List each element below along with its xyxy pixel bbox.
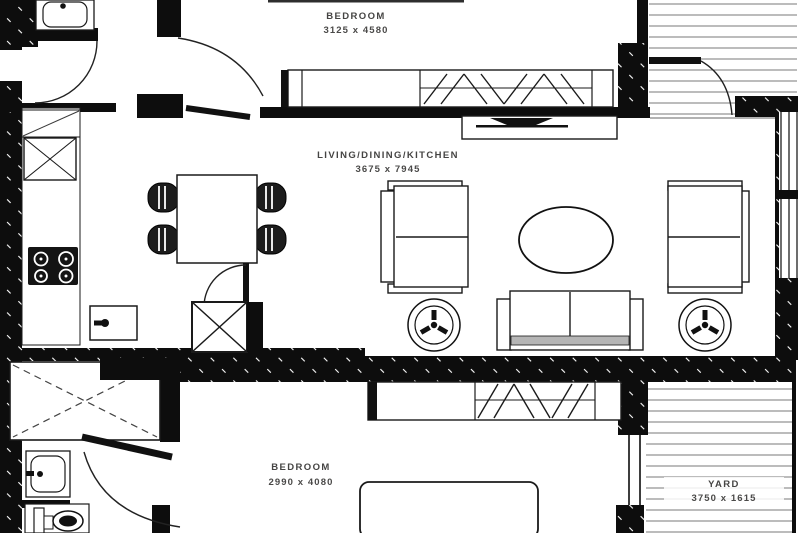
dining-chair	[255, 225, 286, 254]
ceiling-fan-left	[408, 299, 460, 351]
toilet	[25, 504, 89, 533]
dining-chair	[148, 225, 179, 254]
wall-yard-right-border	[792, 353, 796, 533]
washbasin-bottom	[26, 451, 70, 497]
fridge	[24, 138, 76, 180]
room-size: 3125 x 4580	[324, 25, 389, 36]
door-leaf-kitchen	[243, 263, 249, 307]
window-yard-left	[626, 435, 644, 505]
floor-plan: BEDROOM 3125 x 4580 LIVING/DINING/KITCHE…	[0, 0, 800, 533]
wall-top-edge	[268, 0, 464, 3]
window-left-wall	[0, 47, 22, 84]
dining-table	[177, 175, 257, 263]
duct-shaft	[192, 302, 263, 352]
armchair-left	[381, 181, 468, 293]
armchair-right	[668, 181, 749, 293]
label-yard: YARD 3750 x 1615	[664, 477, 784, 504]
coffee-table	[519, 207, 613, 273]
washbasin-top	[36, 0, 94, 30]
kitchen-sink	[90, 306, 137, 340]
wall-bedroom2-right	[618, 382, 648, 435]
door-leaf-balcony	[649, 57, 701, 64]
wall-balcony-left	[618, 43, 648, 117]
stove	[28, 247, 78, 285]
room-size: 3675 x 7945	[356, 164, 421, 175]
wall-shower-top-chunk	[100, 358, 180, 380]
door-arc-bath1	[35, 41, 97, 103]
wall-top-left	[0, 0, 38, 47]
room-name: BEDROOM	[326, 11, 385, 22]
label-bedroom1: BEDROOM 3125 x 4580	[324, 11, 389, 36]
wall-left	[0, 84, 22, 533]
ceiling-fan-right	[679, 299, 731, 351]
door-arc-balcony	[701, 61, 732, 115]
dining-chair	[255, 183, 286, 212]
door-leaf-bedroom1	[186, 108, 250, 117]
sofa	[497, 291, 643, 350]
window-right-wall	[779, 112, 798, 278]
tv-unit	[462, 116, 617, 139]
wall-balcony-up	[637, 0, 648, 43]
bed	[360, 482, 538, 533]
room-name: LIVING/DINING/KITCHEN	[317, 150, 459, 161]
wardrobe-bedroom1	[281, 70, 613, 107]
room-name: YARD	[708, 479, 740, 490]
wardrobe-bedroom2	[368, 382, 621, 420]
label-living: LIVING/DINING/KITCHEN 3675 x 7945	[317, 150, 459, 175]
wall-yard-left-low	[616, 505, 644, 533]
wall-bath2-right-low	[152, 505, 170, 533]
wall-mid	[177, 356, 795, 382]
dining-chair	[148, 183, 179, 212]
wall-bedroom1-left	[157, 0, 181, 37]
label-bedroom2: BEDROOM 2990 x 4080	[269, 462, 334, 488]
door-arc-kitchen	[204, 265, 246, 307]
yard-deck-boards	[646, 389, 792, 532]
door-arc-bedroom1	[178, 38, 263, 96]
room-size: 2990 x 4080	[269, 477, 334, 488]
wall-bedroom1-doorside	[137, 94, 183, 118]
room-size: 3750 x 1615	[692, 493, 757, 504]
room-name: BEDROOM	[271, 462, 330, 473]
